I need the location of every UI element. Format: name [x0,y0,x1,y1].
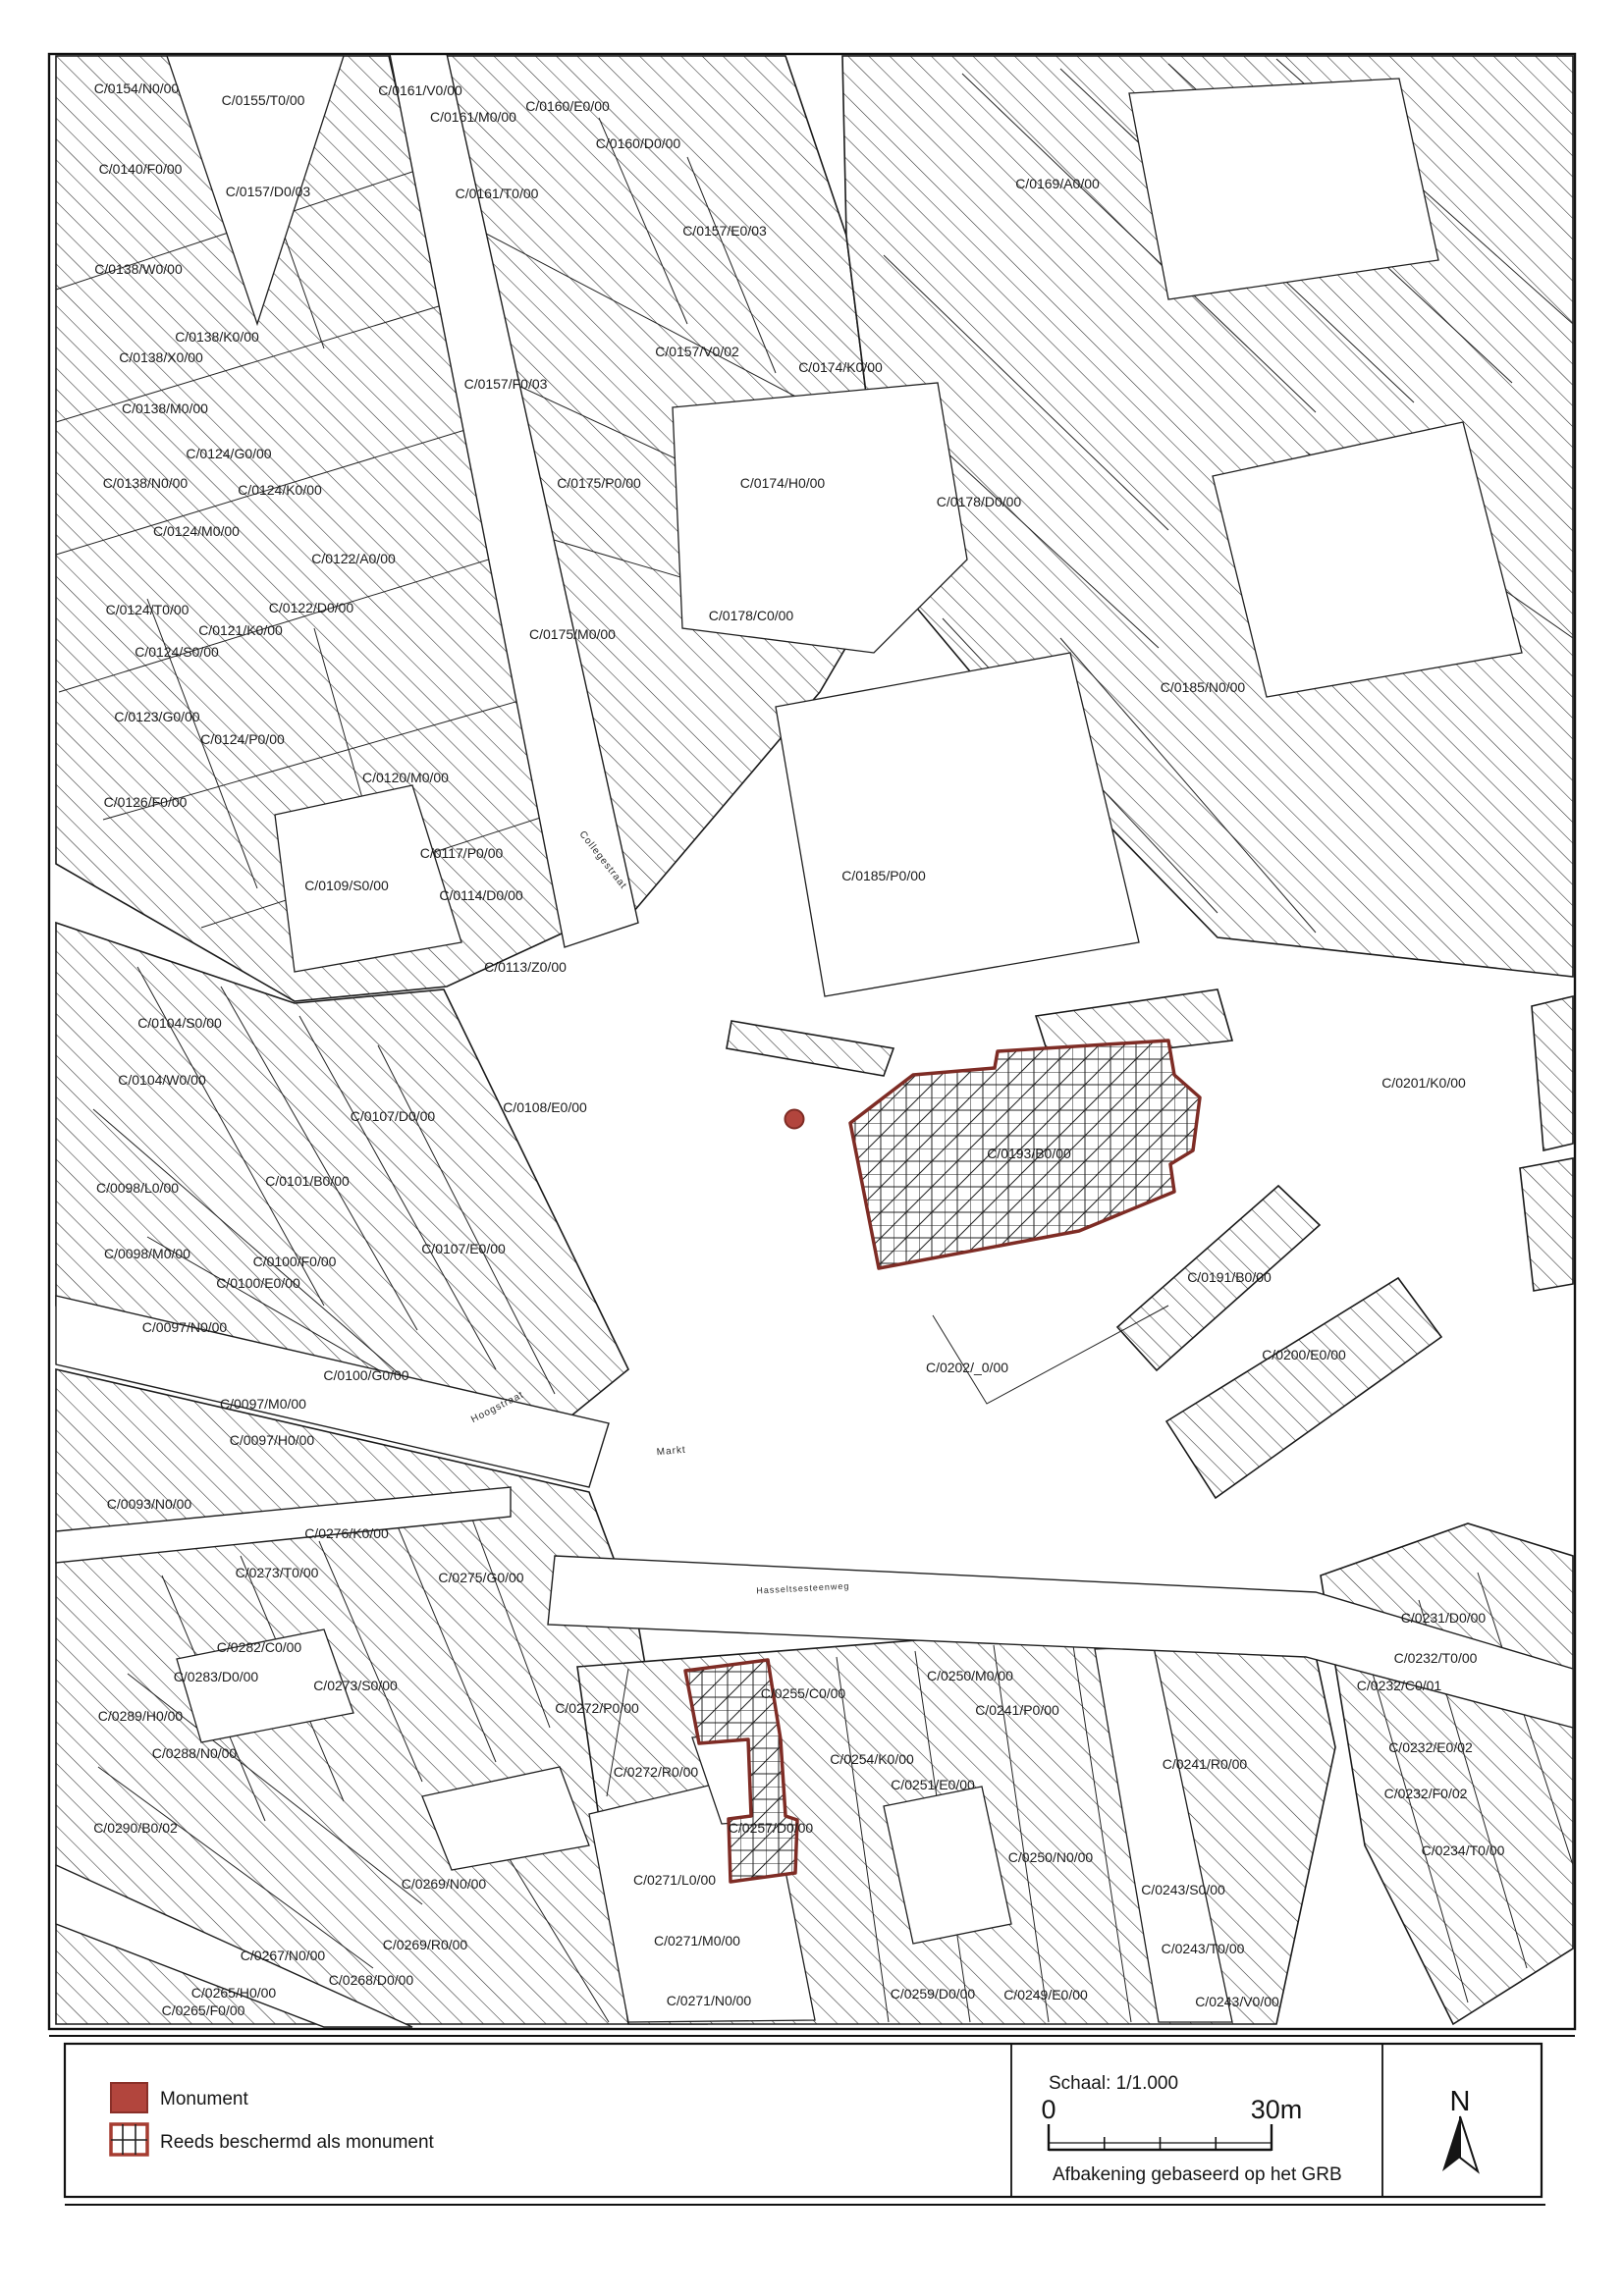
parcel-label: C/0120/M0/00 [362,770,449,785]
parcel-blocks [56,56,1573,2024]
parcel-label: C/0243/V0/00 [1195,1994,1279,2009]
parcel-label: C/0271/L0/00 [633,1872,716,1888]
parcel-label: C/0273/T0/00 [236,1565,319,1580]
parcel-label: C/0122/A0/00 [311,551,396,566]
parcel-label: C/0138/W0/00 [94,261,183,277]
parcel-label: C/0232/F0/02 [1384,1786,1468,1801]
parcel-label: C/0161/M0/00 [430,109,516,125]
parcel-label: C/0175/P0/00 [557,475,641,491]
parcel-label: C/0161/T0/00 [456,186,539,201]
parcel-label: C/0276/K0/00 [304,1525,389,1541]
parcel-label: C/0201/K0/00 [1381,1075,1466,1091]
parcel-label: C/0232/T0/00 [1394,1650,1478,1666]
parcel-label: C/0160/E0/00 [525,98,610,114]
parcel-label: C/0097/N0/00 [142,1319,228,1335]
parcel-label: C/0202/_0/00 [926,1360,1008,1375]
parcel-label: C/0098/M0/00 [104,1246,190,1261]
parcel-label: C/0272/P0/00 [555,1700,639,1716]
parcel-label: C/0108/E0/00 [503,1099,587,1115]
parcel-label: C/0126/F0/00 [104,794,188,810]
parcel-label: C/0138/M0/00 [122,400,208,416]
parcel-label: C/0271/N0/00 [667,1993,752,2008]
parcel-label: C/0114/D0/00 [439,887,523,903]
parcel-label: C/0157/D0/03 [226,184,311,199]
cadastral-map-page: C/0154/N0/00C/0155/T0/00C/0161/V0/00C/01… [0,0,1624,2296]
parcel-label: C/0241/P0/00 [975,1702,1059,1718]
parcel-label: C/0124/T0/00 [106,602,189,617]
parcel-label: C/0275/G0/00 [438,1570,523,1585]
parcel-label: C/0124/M0/00 [153,523,240,539]
parcel-label: C/0268/D0/00 [329,1972,414,1988]
scale-caption: Afbakening gebaseerd op het GRB [1053,2164,1342,2185]
parcel-label: C/0185/N0/00 [1161,679,1246,695]
parcel-label: C/0097/M0/00 [220,1396,306,1412]
scale-end-label: 30m [1251,2095,1303,2124]
parcel-label: C/0121/K0/00 [198,622,283,638]
parcel-label: C/0241/R0/00 [1163,1756,1248,1772]
parcel-label: C/0174/K0/00 [798,359,883,375]
parcel-label: C/0271/M0/00 [654,1933,740,1949]
block-bottom-right [1321,1523,1573,2024]
parcel-label: C/0250/M0/00 [927,1668,1013,1683]
parcel-label: C/0161/V0/00 [378,82,462,98]
parcel-label: C/0178/C0/00 [709,608,794,623]
scale-start-label: 0 [1041,2095,1056,2124]
parcel-label: C/0157/E0/03 [682,223,767,239]
parcel-label: C/0104/W0/00 [118,1072,206,1088]
parcel-label: C/0113/Z0/00 [484,959,567,975]
parcel-label: C/0157/V0/02 [655,344,739,359]
parcel-label: C/0123/G0/00 [114,709,199,724]
north-label: N [1450,2086,1471,2117]
parcel-label: C/0101/B0/00 [265,1173,350,1189]
parcel-label: C/0138/N0/00 [103,475,189,491]
parcel-label: C/0269/N0/00 [402,1876,487,1892]
parcel-label: C/0259/D0/00 [891,1986,976,2002]
parcel-label: C/0200/E0/00 [1262,1347,1346,1362]
parcel-label: C/0140/F0/00 [99,161,183,177]
legend-item-protected-label: Reeds beschermd als monument [160,2132,435,2153]
parcel-label: C/0104/S0/00 [137,1015,222,1031]
parcel-label: C/0109/S0/00 [304,878,389,893]
protected-monument-swatch-icon [111,2124,147,2155]
scale-title: Schaal: 1/1.000 [1049,2073,1178,2094]
parcel-label: C/0191/B0/00 [1187,1269,1272,1285]
parcel-label: C/0243/T0/00 [1162,1941,1245,1956]
parcel-label: C/0100/E0/00 [216,1275,300,1291]
street-label: Markt [656,1445,686,1459]
parcel-label: C/0160/D0/00 [596,135,681,151]
parcel-label: C/0232/E0/02 [1388,1739,1473,1755]
parcel-label: C/0174/H0/00 [740,475,826,491]
parcel-label: C/0124/S0/00 [135,644,219,660]
parcel-label: C/0155/T0/00 [222,92,305,108]
parcel-label: C/0193/B0/00 [987,1146,1071,1161]
legend-item-monument-label: Monument [160,2089,248,2109]
map-area: C/0154/N0/00C/0155/T0/00C/0161/V0/00C/01… [56,54,1573,2027]
parcel-label: C/0178/D0/00 [937,494,1022,509]
red-dot-marker [785,1110,804,1129]
parcel-label: C/0243/S0/00 [1141,1882,1225,1897]
parcel-label: C/0098/L0/00 [96,1180,179,1196]
parcel-label: C/0124/G0/00 [186,446,271,461]
parcel-label: C/0097/H0/00 [230,1432,315,1448]
parcel-label: C/0124/K0/00 [238,482,322,498]
parcel-label: C/0154/N0/00 [94,80,180,96]
parcel-label: C/0093/N0/00 [107,1496,192,1512]
parcel-label: C/0107/D0/00 [351,1108,436,1124]
cadastral-map-svg: C/0154/N0/00C/0155/T0/00C/0161/V0/00C/01… [0,0,1624,2296]
parcel-label: C/0231/D0/00 [1401,1610,1487,1626]
parcel-label: C/0234/T0/00 [1422,1842,1505,1858]
parcel-label: C/0122/D0/00 [269,600,354,615]
parcel-label: C/0265/F0/00 [162,2002,245,2018]
parcel-label: C/0265/H0/00 [191,1985,277,2001]
parcel-label: C/0272/R0/00 [614,1764,699,1780]
parcel-label: C/0175/M0/00 [529,626,616,642]
parcel-label: C/0290/B0/02 [93,1820,178,1836]
parcel-label: C/0124/P0/00 [200,731,285,747]
parcel-label: C/0269/R0/00 [383,1937,468,1952]
parcel-label: C/0157/F0/03 [464,376,548,392]
parcel-label: C/0117/P0/00 [420,845,504,861]
strip-right-edge-1 [1532,996,1573,1150]
parcel-label: C/0250/N0/00 [1008,1849,1094,1865]
parcel-label: C/0273/S0/00 [313,1678,398,1693]
parcel-label: C/0282/C0/00 [217,1639,302,1655]
parcel-label: C/0251/E0/00 [891,1777,975,1792]
parcel-label: C/0100/G0/00 [323,1367,408,1383]
parcel-label: C/0288/N0/00 [152,1745,238,1761]
parcel-label: C/0289/H0/00 [98,1708,184,1724]
parcel-label: C/0255/C0/00 [761,1685,846,1701]
parcel-label: C/0254/K0/00 [830,1751,914,1767]
parcel-label: C/0107/E0/00 [421,1241,506,1256]
parcel-label: C/0100/F0/00 [253,1254,337,1269]
parcel-label: C/0185/P0/00 [841,868,926,883]
strip-nw-of-monument [727,1021,893,1076]
strip-right-edge-2 [1520,1158,1573,1291]
parcel-label: C/0283/D0/00 [174,1669,259,1684]
legend-strip: Monument Reeds beschermd als monument Sc… [65,2044,1545,2205]
courtyard-top-right-1 [1129,79,1438,299]
parcel-label: C/0138/K0/00 [175,329,259,345]
parcel-label: C/0267/N0/00 [241,1948,326,1963]
parcel-label: C/0257/D0/00 [729,1820,814,1836]
parcel-label: C/0169/A0/00 [1015,176,1100,191]
parcel-label: C/0249/E0/00 [1003,1987,1088,2002]
monument-swatch-icon [111,2083,147,2112]
parcel-label: C/0138/X0/00 [119,349,203,365]
parcel-label: C/0232/C0/01 [1357,1678,1442,1693]
